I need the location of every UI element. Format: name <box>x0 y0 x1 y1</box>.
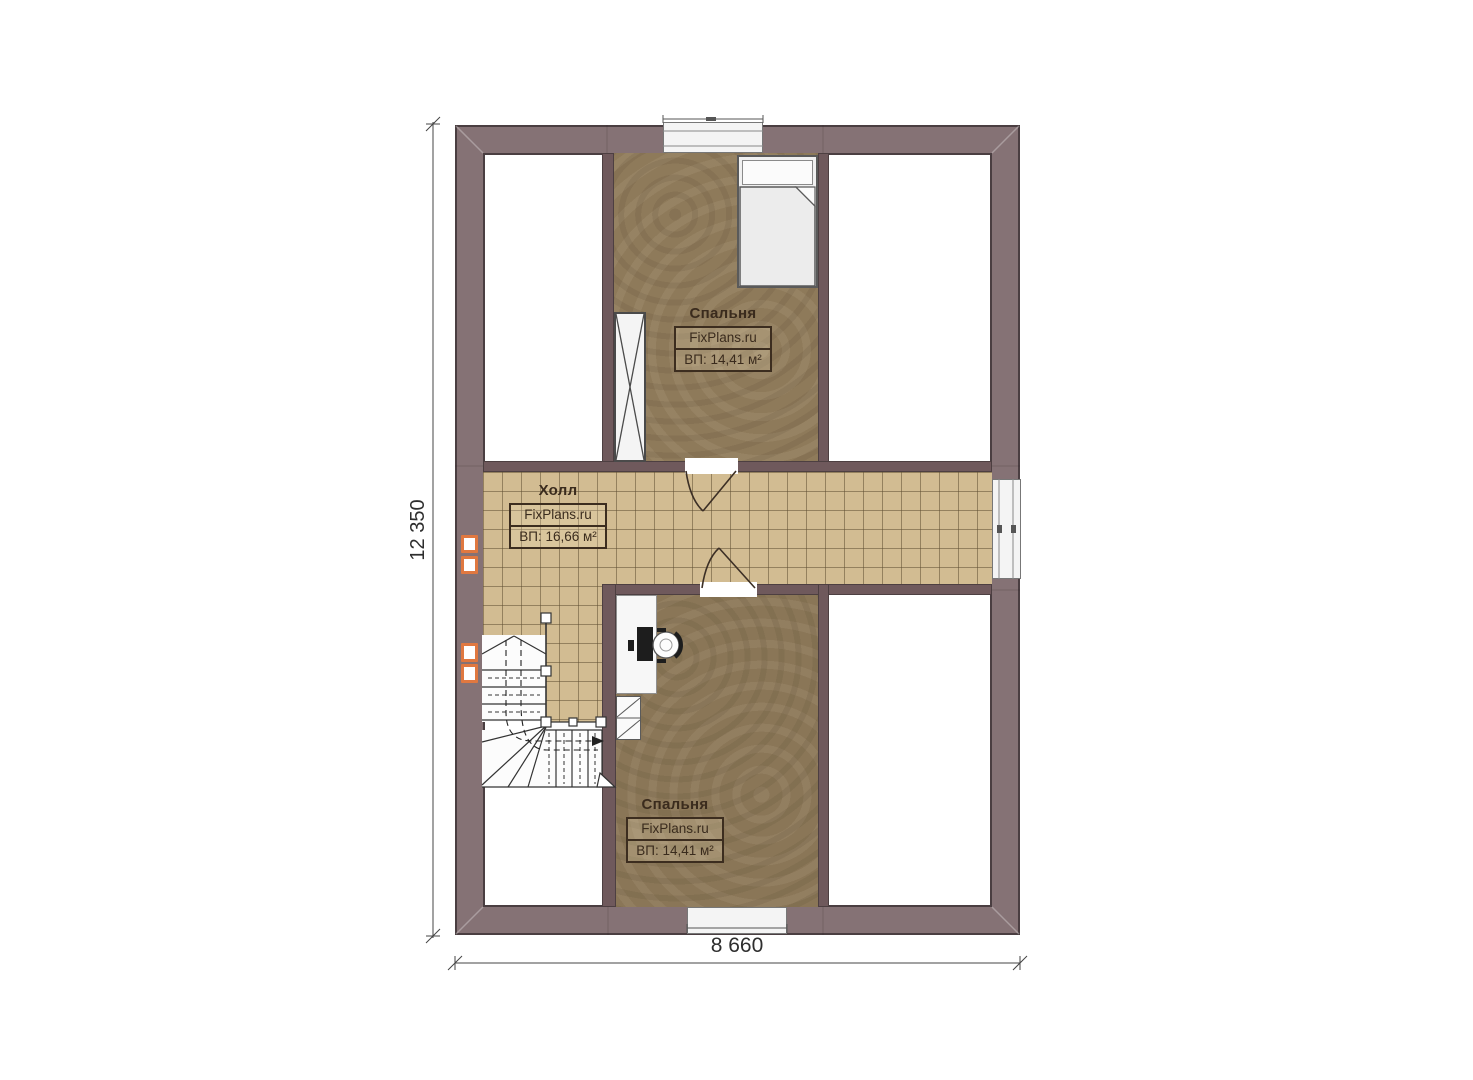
brand-label: FixPlans.ru <box>511 505 605 527</box>
brand-label: FixPlans.ru <box>628 819 722 841</box>
door-opening-bedroom-bottom <box>700 582 757 597</box>
desk <box>616 595 657 694</box>
partition-top-left <box>602 153 614 472</box>
staircase-landing <box>546 722 602 730</box>
partition-bottom-right <box>818 584 829 907</box>
room-label-bedroom-bottom: Спальня FixPlans.ru ВП: 14,41 м² <box>580 796 770 863</box>
shelf-cabinet <box>616 696 641 740</box>
door-opening-bedroom-top <box>685 458 738 474</box>
staircase-lower-flight <box>482 730 602 787</box>
room-area-box: FixPlans.ru ВП: 14,41 м² <box>674 326 772 372</box>
wall-marker <box>461 664 478 683</box>
window-top <box>663 122 763 153</box>
window-right <box>992 479 1021 579</box>
dimension-label-height: 12 350 <box>407 499 429 560</box>
dimension-line-height <box>426 117 440 943</box>
room-area-label: ВП: 16,66 м² <box>511 527 605 547</box>
wall-marker <box>461 643 478 662</box>
wall-marker <box>461 556 478 574</box>
dimension-label-width: 8 660 <box>711 934 764 957</box>
room-area-box: FixPlans.ru ВП: 14,41 м² <box>626 817 724 863</box>
dimension-line-width <box>448 956 1027 970</box>
room-area-label: ВП: 14,41 м² <box>628 841 722 861</box>
room-label-hall: Холл FixPlans.ru ВП: 16,66 м² <box>463 482 653 549</box>
room-name: Спальня <box>690 305 757 322</box>
room-label-bedroom-top: Спальня FixPlans.ru ВП: 14,41 м² <box>628 305 818 372</box>
room-area-box: FixPlans.ru ВП: 16,66 м² <box>509 503 607 549</box>
room-name: Спальня <box>642 796 709 813</box>
floor-plan-canvas: 12 350 8 660 Спальня FixPlans.ru ВП: 14,… <box>0 0 1473 1080</box>
room-area-label: ВП: 14,41 м² <box>676 350 770 370</box>
bed-pillow <box>742 160 813 185</box>
window-bottom <box>687 907 787 934</box>
partition-hall-bottom <box>602 584 992 595</box>
staircase-upper-flight <box>482 635 546 722</box>
room-name: Холл <box>539 482 578 499</box>
brand-label: FixPlans.ru <box>676 328 770 350</box>
partition-top-right <box>818 153 829 472</box>
